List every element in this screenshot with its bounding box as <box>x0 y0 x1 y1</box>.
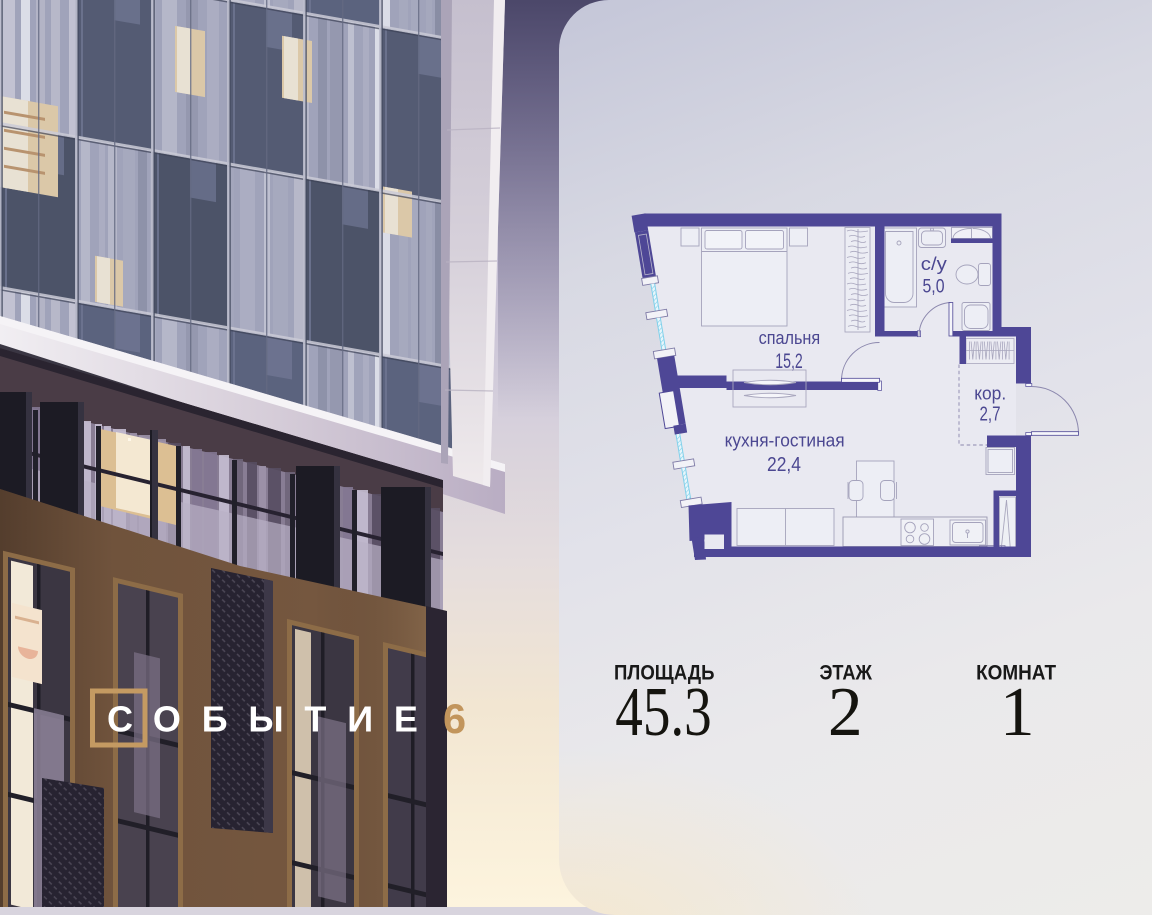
svg-text:кухня-гостиная: кухня-гостиная <box>725 430 845 451</box>
svg-text:15,2: 15,2 <box>775 350 803 373</box>
svg-text:1: 1 <box>1000 674 1035 751</box>
svg-text:2,7: 2,7 <box>980 403 1001 426</box>
svg-text:кор.: кор. <box>974 382 1006 403</box>
svg-text:спальня: спальня <box>759 327 821 348</box>
svg-text:45.3: 45.3 <box>615 674 712 751</box>
svg-text:2: 2 <box>828 674 863 751</box>
svg-text:5,0: 5,0 <box>923 276 945 298</box>
svg-text:с/у: с/у <box>921 253 948 274</box>
svg-text:22,4: 22,4 <box>767 453 801 476</box>
